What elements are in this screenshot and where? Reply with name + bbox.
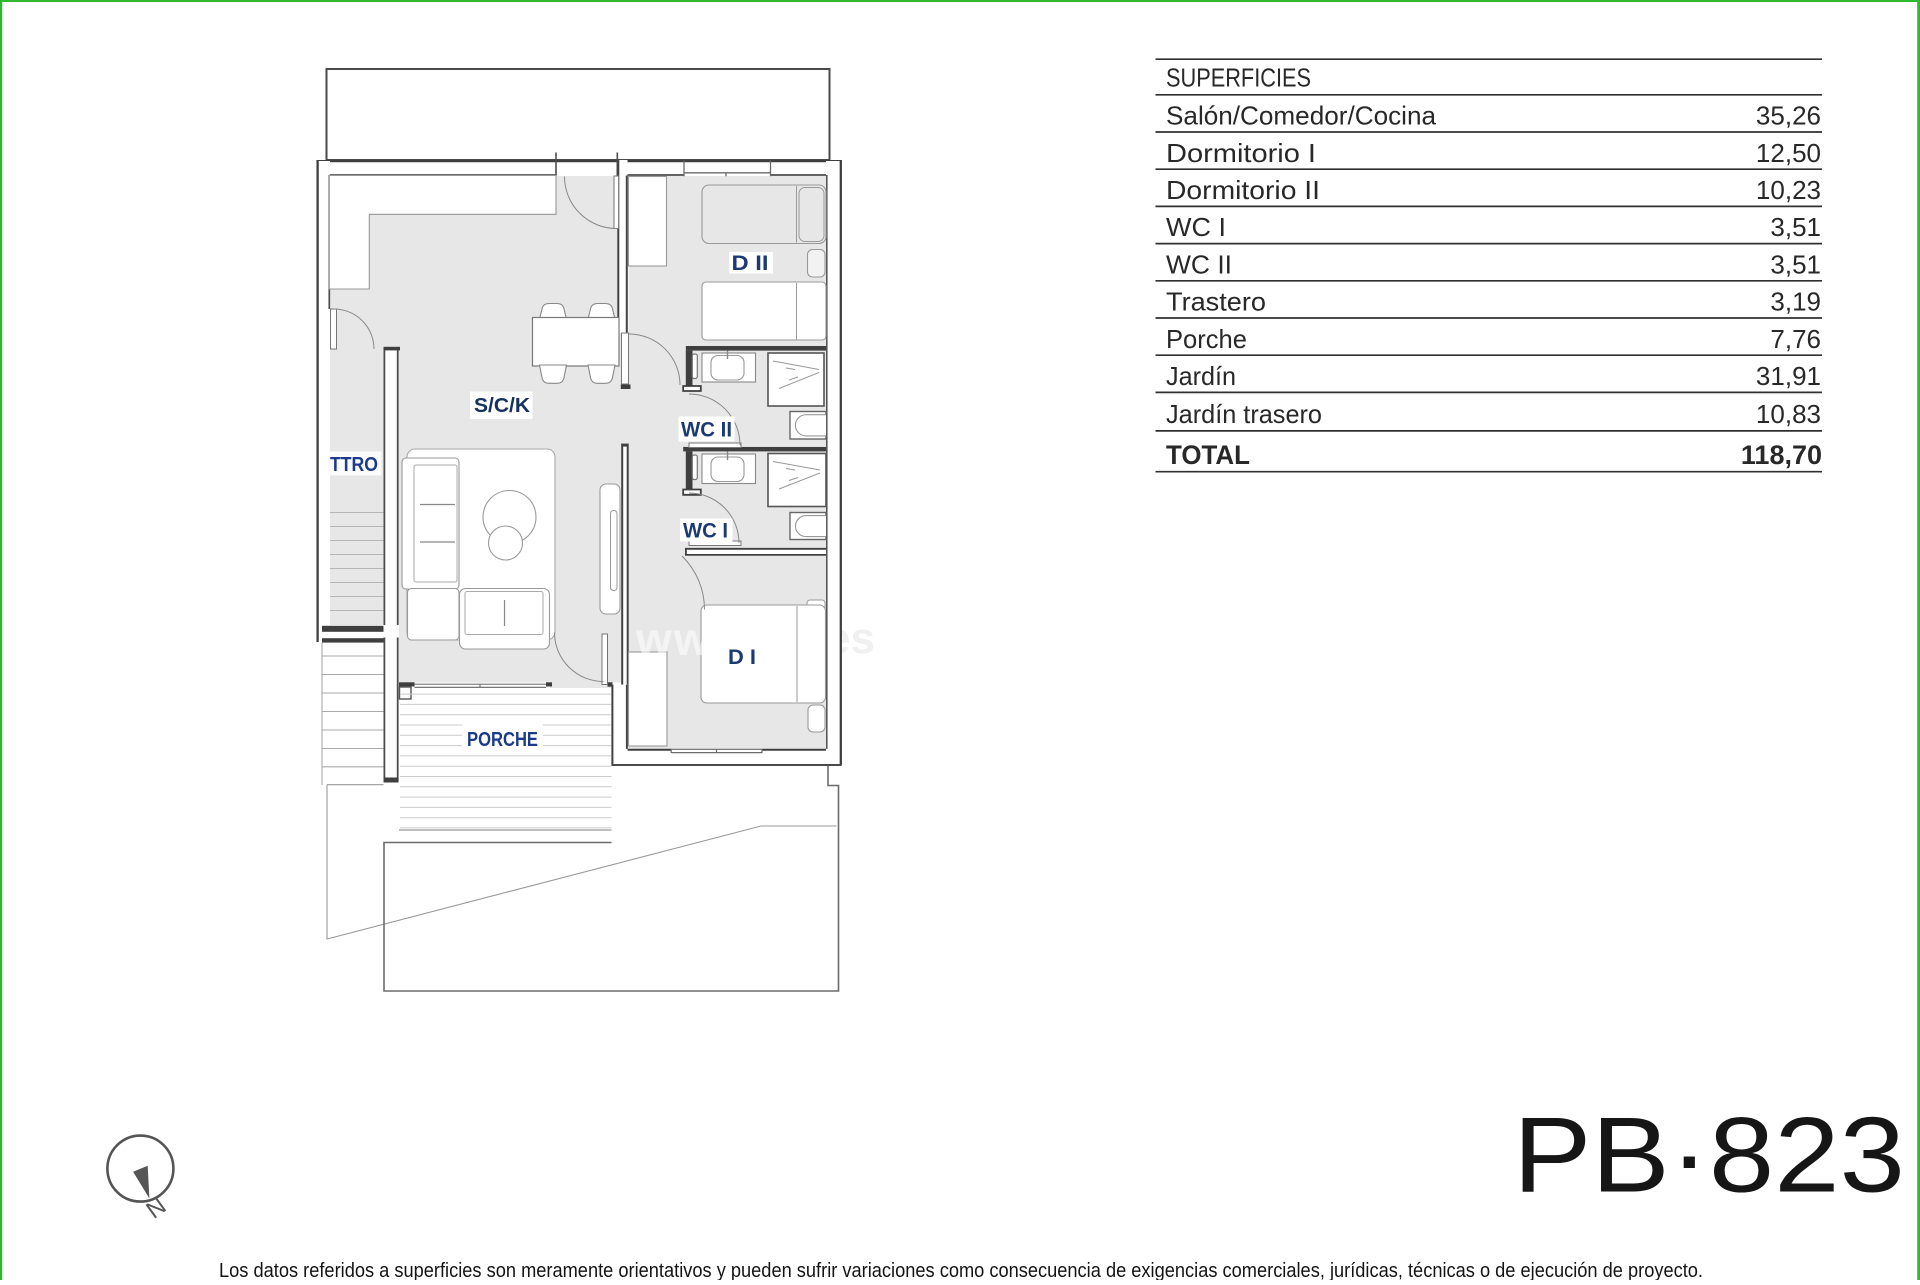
svg-text:TOTAL: TOTAL bbox=[1166, 440, 1250, 470]
svg-text:WC II: WC II bbox=[681, 419, 732, 442]
svg-text:WC II: WC II bbox=[1166, 249, 1232, 279]
svg-text:WC I: WC I bbox=[683, 520, 728, 543]
svg-text:3,19: 3,19 bbox=[1770, 287, 1821, 317]
svg-text:D I: D I bbox=[728, 646, 756, 669]
svg-text:S/C/K: S/C/K bbox=[474, 395, 531, 417]
svg-text:Dormitorio II: Dormitorio II bbox=[1166, 175, 1320, 205]
svg-text:Porche: Porche bbox=[1166, 324, 1247, 354]
svg-text:3,51: 3,51 bbox=[1770, 249, 1821, 279]
svg-text:WC I: WC I bbox=[1166, 212, 1226, 242]
svg-text:12,50: 12,50 bbox=[1756, 138, 1821, 168]
svg-text:Los datos referidos a superfic: Los datos referidos a superficies son me… bbox=[219, 1260, 1703, 1280]
svg-text:31,91: 31,91 bbox=[1756, 361, 1821, 391]
svg-text:PB·823: PB·823 bbox=[1513, 1095, 1905, 1215]
svg-text:D II: D II bbox=[732, 252, 769, 275]
svg-text:Salón/Comedor/Cocina: Salón/Comedor/Cocina bbox=[1166, 101, 1437, 131]
svg-text:7,76: 7,76 bbox=[1770, 324, 1821, 354]
svg-text:10,83: 10,83 bbox=[1756, 399, 1821, 429]
svg-text:PORCHE: PORCHE bbox=[467, 729, 538, 751]
svg-text:35,26: 35,26 bbox=[1756, 101, 1821, 131]
svg-text:Trastero: Trastero bbox=[1166, 287, 1266, 317]
svg-text:3,51: 3,51 bbox=[1770, 212, 1821, 242]
svg-text:SUPERFICIES: SUPERFICIES bbox=[1166, 62, 1311, 92]
svg-text:118,70: 118,70 bbox=[1741, 440, 1822, 470]
svg-text:TTRO: TTRO bbox=[330, 454, 378, 476]
svg-text:10,23: 10,23 bbox=[1756, 175, 1821, 205]
svg-text:Jardín trasero: Jardín trasero bbox=[1166, 399, 1322, 429]
svg-text:Dormitorio I: Dormitorio I bbox=[1166, 138, 1316, 168]
svg-text:Jardín: Jardín bbox=[1166, 361, 1236, 391]
